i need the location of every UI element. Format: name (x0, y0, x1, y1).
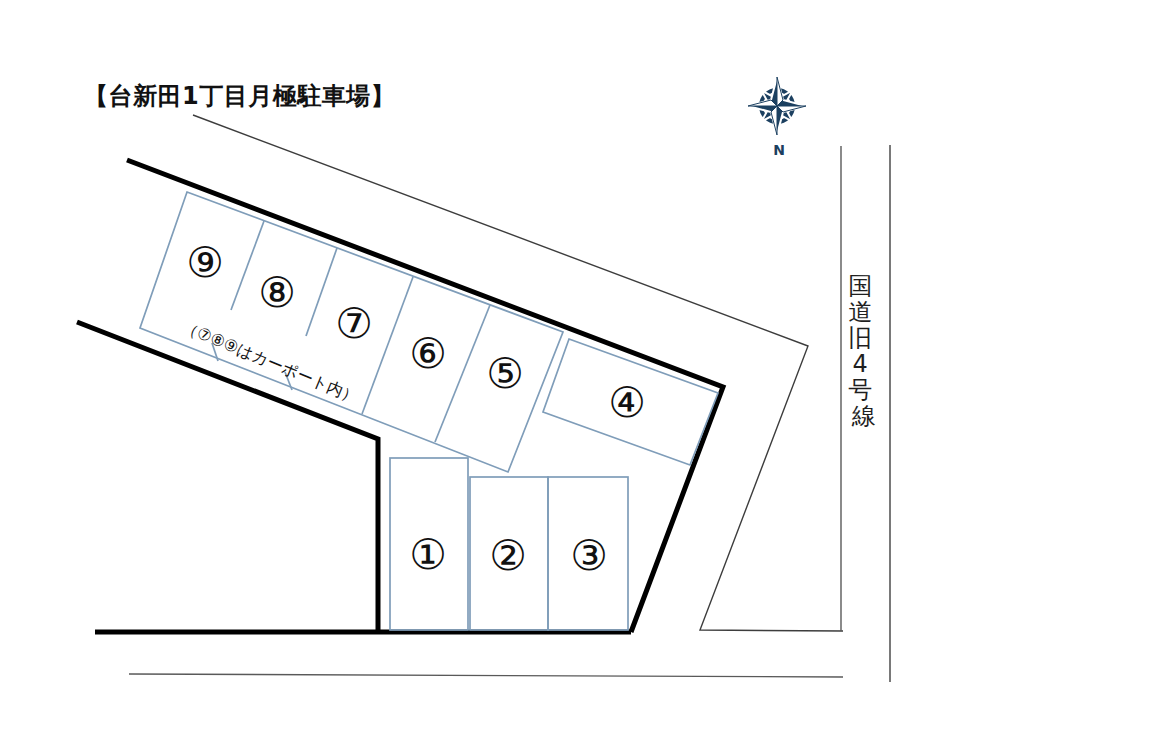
compass-rose-icon (746, 75, 808, 137)
road-name-char: 線 (851, 402, 876, 430)
road-name-char: 号 (848, 376, 872, 404)
space-label-3: ③ (570, 531, 608, 580)
space-label-5: ⑤ (486, 349, 524, 398)
road-name-char: 旧 (848, 324, 872, 352)
parking-map: 【台新田1丁目月極駐車場】 ① ② ③ ④ ⑤ ⑥ ⑦ ⑧ ⑨ (0, 0, 1152, 729)
north-label: N (773, 142, 785, 158)
space-label-1: ① (409, 530, 447, 579)
compass-point-highlights (748, 77, 806, 135)
divider-8-7 (306, 248, 337, 336)
parking-map-canvas: 【台新田1丁目月極駐車場】 ① ② ③ ④ ⑤ ⑥ ⑦ ⑧ ⑨ (0, 0, 1152, 729)
road-name-char: 4 (853, 350, 868, 378)
space-label-4: ④ (608, 378, 646, 427)
space-label-6: ⑥ (409, 329, 447, 378)
road-name-char: 道 (848, 298, 872, 326)
space-label-9: ⑨ (186, 238, 224, 287)
road-name-char: 国 (848, 272, 872, 300)
space-label-8: ⑧ (258, 268, 296, 317)
site-boundary-left-line (77, 322, 378, 631)
page-title: 【台新田1丁目月極駐車場】 (84, 82, 395, 110)
space-label-2: ② (489, 531, 527, 580)
space-label-7: ⑦ (335, 299, 373, 348)
carport-note: （⑦⑧⑨はカーポート内） (179, 317, 360, 407)
road-name-label: 国 道 旧 4 号 線 (848, 272, 880, 430)
bottom-road-line (129, 674, 843, 677)
